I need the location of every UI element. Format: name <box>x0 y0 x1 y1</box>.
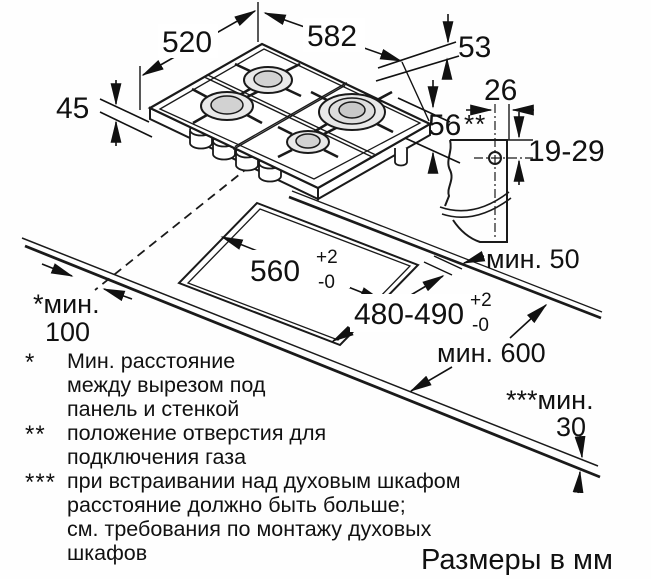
footnote-3-line-4: шкафов <box>67 541 461 565</box>
gas-offset-label: 26 <box>484 74 517 107</box>
burner-front <box>287 131 329 153</box>
wall-clearance-value: 100 <box>45 317 90 347</box>
hob-top-surface <box>150 44 430 188</box>
wall-clearance-marker: *мин. <box>33 289 100 319</box>
under-clearance-marker: ***мин. <box>506 385 594 415</box>
gas-marker: ** <box>464 109 486 139</box>
hob-front-height-label: 45 <box>56 92 89 125</box>
dim-hob-front-height: 45 <box>56 80 152 146</box>
units-note: Размеры в мм <box>421 544 613 577</box>
footnote-3-line-2: расстояние должно быть больше; <box>67 493 461 517</box>
burner-back <box>244 67 292 93</box>
footnote-3-marker: *** <box>25 469 56 497</box>
footnote-2-marker: ** <box>25 421 46 449</box>
cutout-depth-tol-plus: +2 <box>470 290 492 311</box>
footnote-2: положение отверстия для подключения газа <box>67 421 326 469</box>
hob-foot <box>395 148 407 166</box>
installation-diagram: 560 +2 -0 480-490 +2 -0 мин. 50 *мин. 10… <box>0 0 651 579</box>
gas-depth-range-label: 19-29 <box>528 135 605 168</box>
hob-depth-label: 520 <box>162 26 212 59</box>
profile-break-arc-bottom <box>442 198 511 217</box>
footnote-1: Мин. расстояние между вырезом под панель… <box>67 349 265 421</box>
burner-left <box>201 92 253 120</box>
worktop-depth-label: мин. 600 <box>437 338 546 368</box>
cutout-width-tol-plus: +2 <box>316 247 338 268</box>
dim-rear-clearance: мин. 50 <box>464 244 580 274</box>
cutout-width-label: 560 <box>250 255 300 288</box>
footnote-3-line-1: при встраивании над духовым шкафом <box>67 469 461 493</box>
profile-break-arc-top <box>440 192 509 211</box>
footnote-1-line-1: Мин. расстояние <box>67 349 265 373</box>
dim-gas-offset: 26 ** <box>464 74 534 139</box>
hob-edge-height-label: 53 <box>458 31 491 64</box>
burner-wok <box>319 94 385 130</box>
cutout-width-tol-minus: -0 <box>318 272 335 293</box>
dim-hob-edge-height: 53 <box>376 14 491 81</box>
cutout-depth-tol-minus: -0 <box>472 315 489 336</box>
footnote-2-line-2: подключения газа <box>67 445 326 469</box>
hob-width-label: 582 <box>307 20 357 53</box>
under-clearance-value: 30 <box>556 412 586 442</box>
dim-under-clearance: ***мин. 30 <box>506 385 594 493</box>
hob-drawing <box>150 44 430 199</box>
dim-gas-depth-range: 19-29 <box>519 112 605 185</box>
footnote-3-line-3: см. требования по монтажу духовых <box>67 517 461 541</box>
cutout-depth-label: 480-490 <box>354 298 464 331</box>
rear-clearance-label: мин. 50 <box>486 244 580 274</box>
hob-body-height-label: 56 <box>428 109 461 142</box>
footnote-1-line-3: панель и стенкой <box>67 397 265 421</box>
footnote-1-line-2: между вырезом под <box>67 373 265 397</box>
profile-left-wavy-edge <box>445 140 452 206</box>
footnote-2-line-1: положение отверстия для <box>67 421 326 445</box>
footnote-1-marker: * <box>25 349 35 377</box>
footnote-3: при встраивании над духовым шкафом расст… <box>67 469 461 565</box>
